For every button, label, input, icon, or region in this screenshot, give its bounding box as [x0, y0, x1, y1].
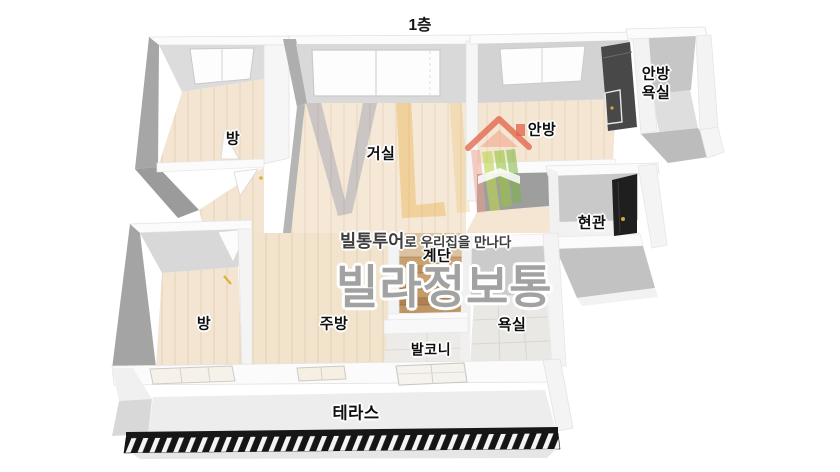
floorplan-canvas: 1층 빌통투어로 우리집을 만나다 빌라정보통 방 거실 안방 안방 욕실 현관… [0, 0, 840, 472]
entrance-door [612, 174, 637, 236]
room-label-kitchen: 주방 [320, 316, 349, 335]
room-label-master-bedroom: 안방 [528, 122, 557, 141]
room-label-master-bath: 안방 욕실 [642, 65, 671, 103]
room-label-bedroom-bottom: 방 [197, 316, 211, 335]
floor-title: 1층 [409, 13, 432, 35]
room-label-entrance: 현관 [578, 215, 607, 234]
watermark-tagline-rest: 로 우리집을 만나다 [404, 235, 511, 250]
room-label-bedroom-top: 방 [226, 131, 240, 150]
room-label-stairs: 계단 [423, 248, 452, 267]
watermark-tagline-bold: 빌통투어 [340, 231, 404, 251]
terrace-railing [124, 427, 560, 459]
room-label-terrace: 테라스 [332, 404, 379, 425]
room-label-balcony: 발코니 [411, 341, 451, 359]
room-label-living-room: 거실 [367, 146, 396, 165]
room-label-bathroom: 욕실 [498, 317, 527, 336]
wardrobe [601, 42, 637, 131]
